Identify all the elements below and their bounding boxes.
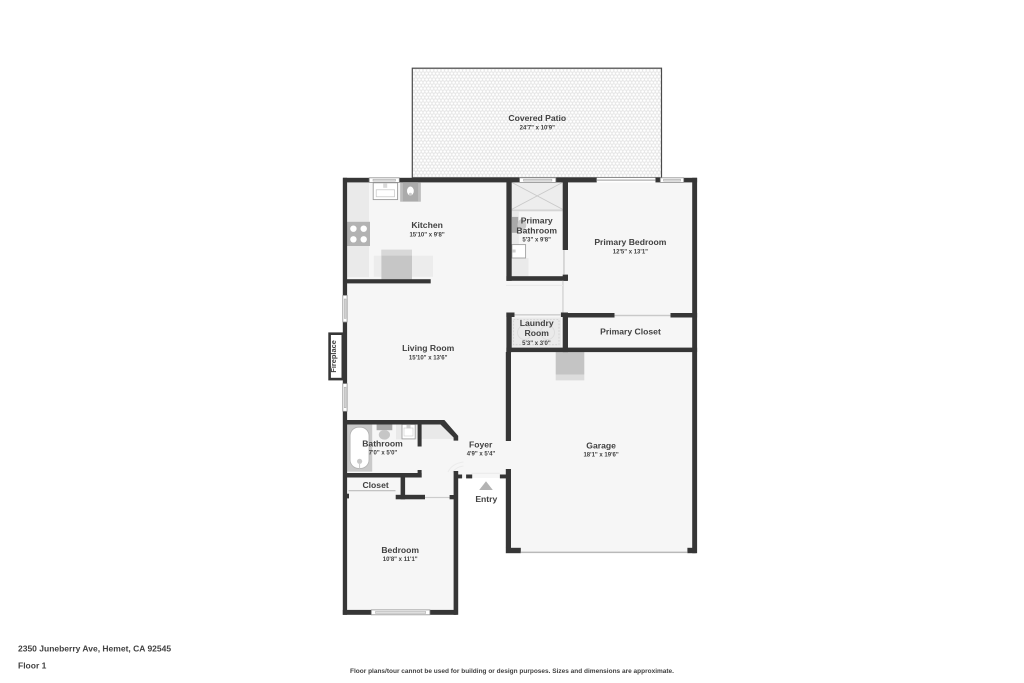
svg-text:Covered Patio: Covered Patio bbox=[508, 113, 566, 123]
svg-text:10'8" x 11'1": 10'8" x 11'1" bbox=[383, 557, 418, 563]
svg-text:5'3" x 9'8": 5'3" x 9'8" bbox=[522, 237, 551, 243]
svg-text:Entry: Entry bbox=[475, 494, 497, 504]
svg-text:Bathroom: Bathroom bbox=[362, 439, 403, 449]
svg-text:15'10" x 9'8": 15'10" x 9'8" bbox=[409, 233, 444, 239]
svg-text:Primary Bedroom: Primary Bedroom bbox=[594, 237, 666, 247]
svg-text:Floor plans/tour cannot be use: Floor plans/tour cannot be used for buil… bbox=[350, 668, 674, 675]
svg-text:18'1" x 19'6": 18'1" x 19'6" bbox=[583, 453, 618, 459]
svg-text:Primary Closet: Primary Closet bbox=[600, 327, 661, 337]
svg-text:Foyer: Foyer bbox=[469, 440, 493, 450]
svg-text:5'3" x 3'0": 5'3" x 3'0" bbox=[522, 341, 551, 347]
svg-text:15'10" x 13'6": 15'10" x 13'6" bbox=[409, 356, 448, 362]
svg-text:4'9" x 5'4": 4'9" x 5'4" bbox=[467, 452, 496, 458]
svg-text:24'7" x 10'9": 24'7" x 10'9" bbox=[520, 126, 555, 132]
svg-text:Garage: Garage bbox=[586, 440, 616, 450]
svg-text:Floor 1: Floor 1 bbox=[18, 661, 47, 671]
svg-text:Closet: Closet bbox=[362, 480, 388, 490]
svg-text:Living Room: Living Room bbox=[402, 343, 454, 353]
svg-text:Bathroom: Bathroom bbox=[516, 225, 557, 235]
svg-text:Primary: Primary bbox=[521, 216, 553, 226]
svg-text:Kitchen: Kitchen bbox=[411, 220, 443, 230]
svg-text:7'0" x 5'0": 7'0" x 5'0" bbox=[369, 450, 398, 456]
svg-text:Room: Room bbox=[525, 328, 550, 338]
svg-text:2350 Juneberry Ave, Hemet, CA: 2350 Juneberry Ave, Hemet, CA 92545 bbox=[18, 644, 171, 654]
svg-text:12'5" x 13'1": 12'5" x 13'1" bbox=[613, 250, 648, 256]
svg-text:Fireplace: Fireplace bbox=[329, 340, 338, 372]
svg-text:Laundry: Laundry bbox=[520, 318, 554, 328]
svg-text:Bedroom: Bedroom bbox=[381, 545, 419, 555]
